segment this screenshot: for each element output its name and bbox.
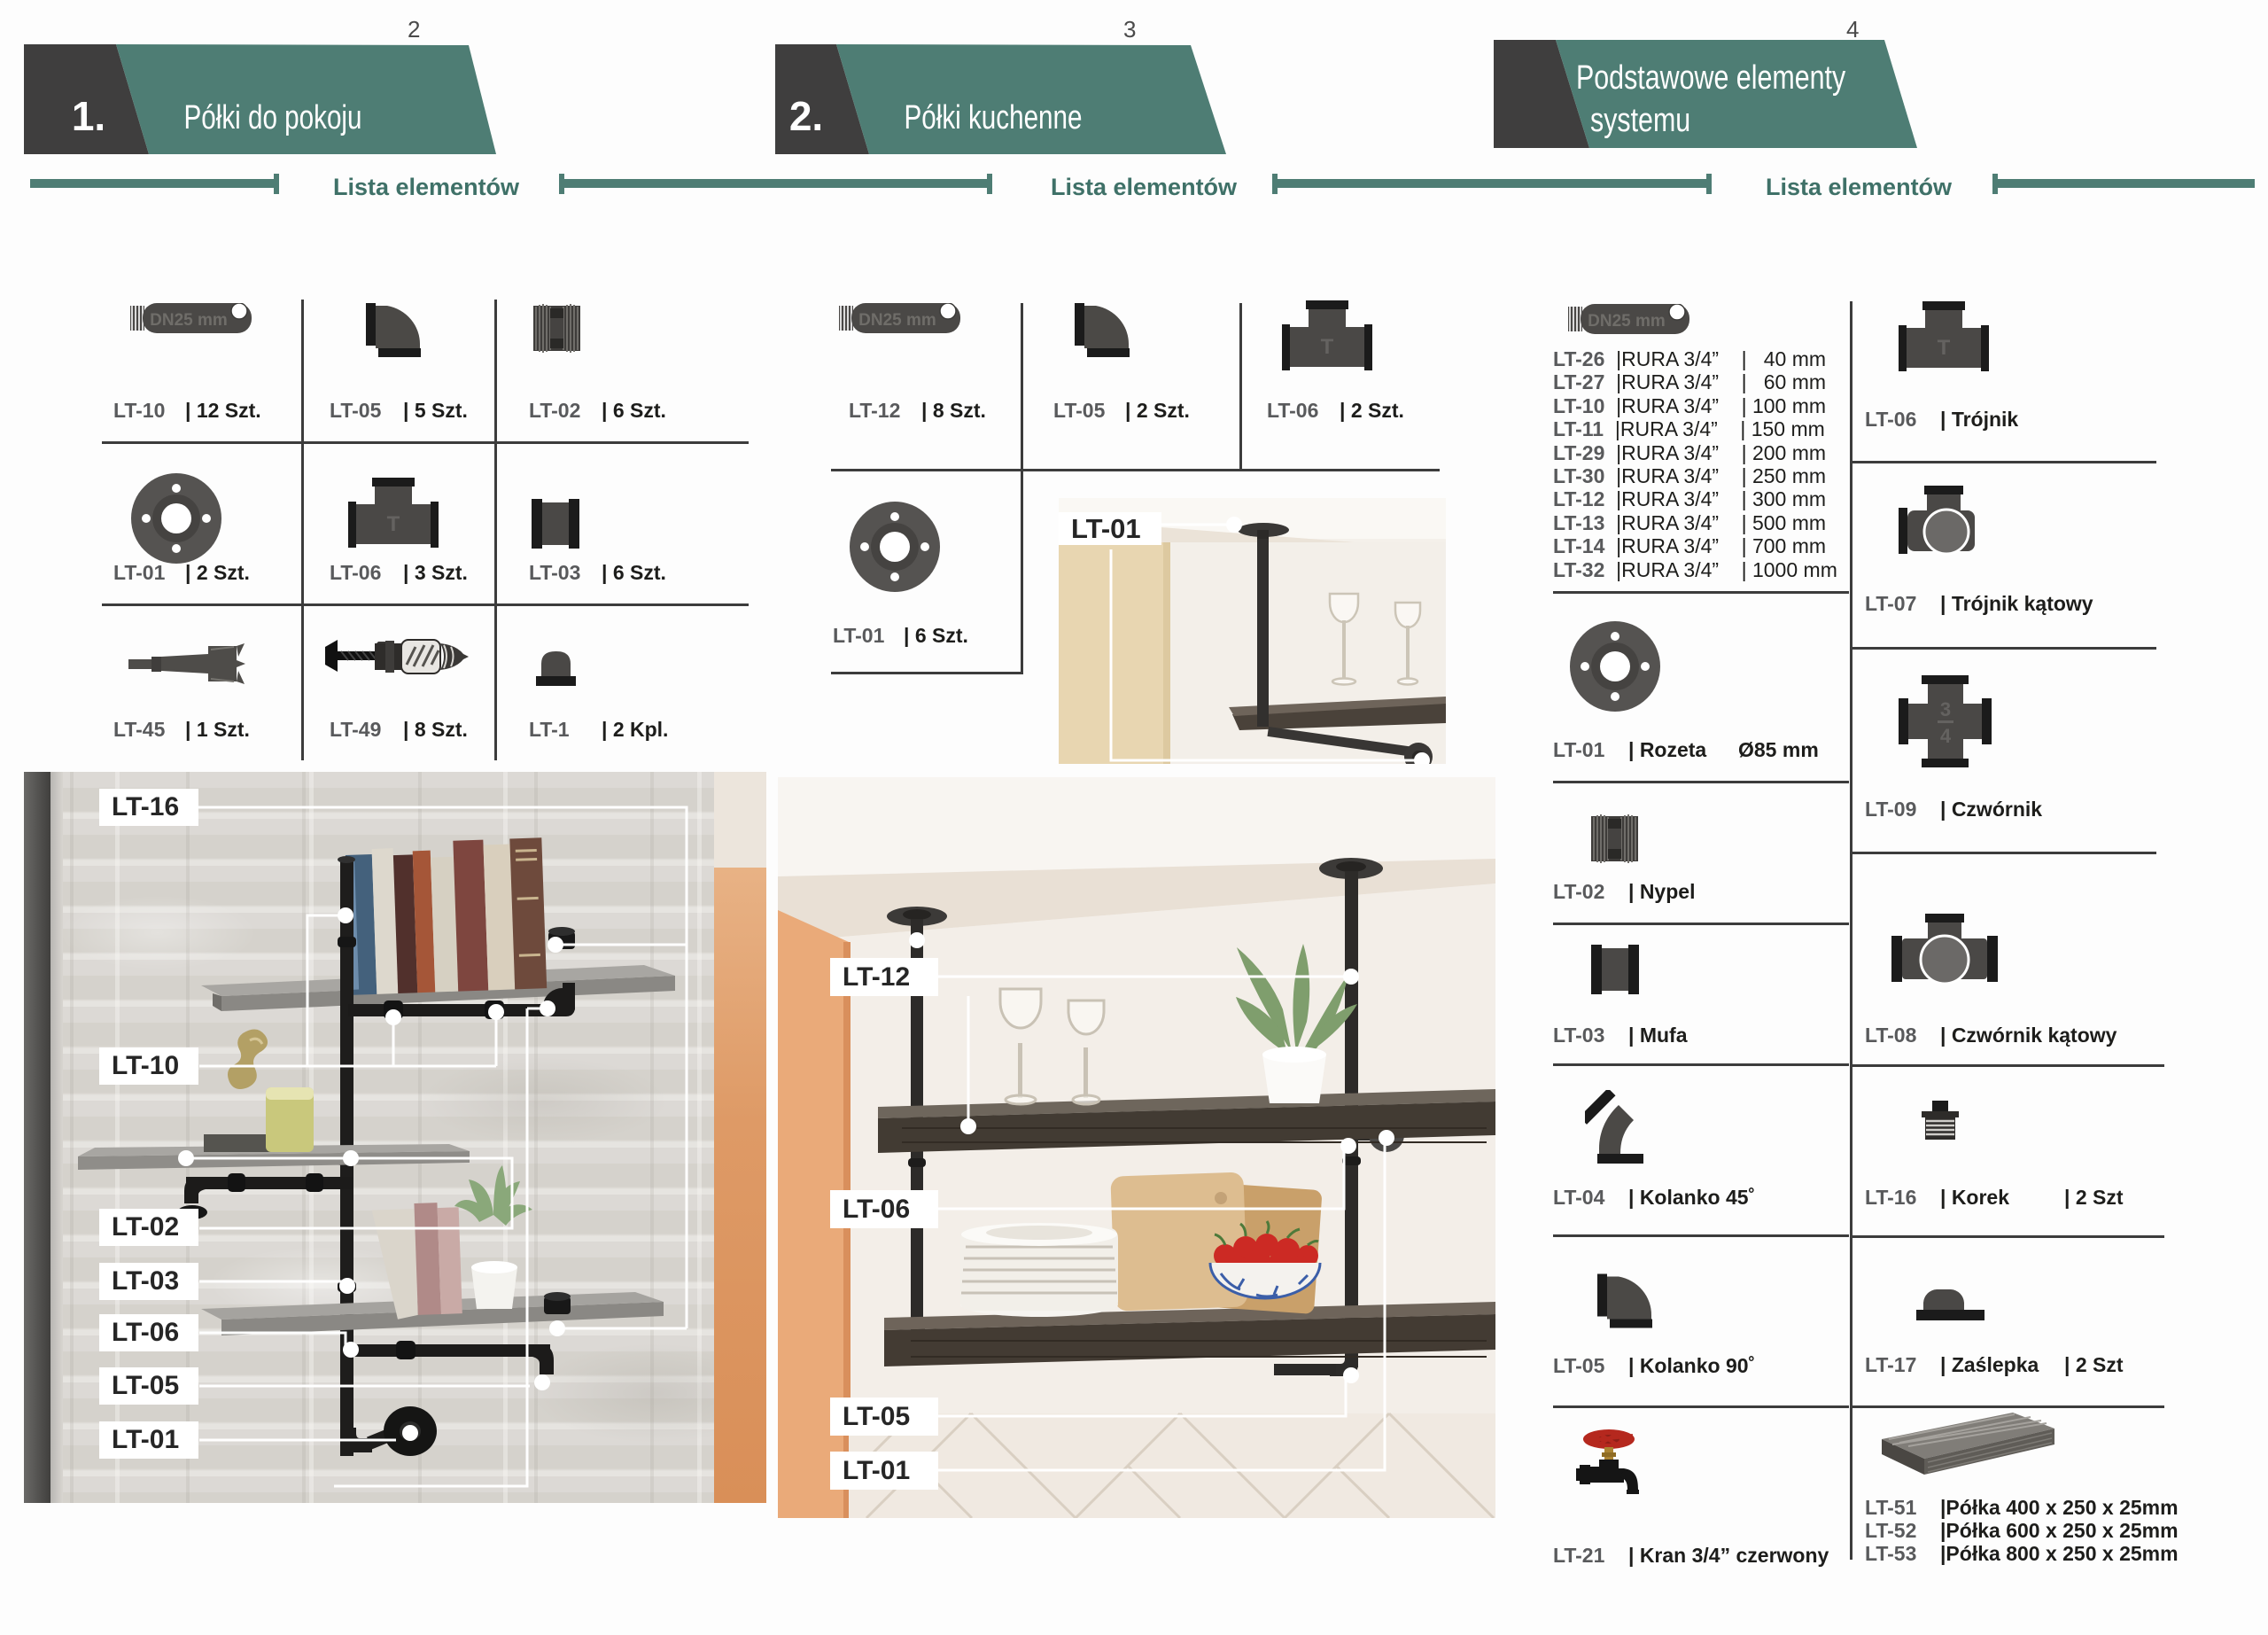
svg-text:DN25 mm: DN25 mm [1588,312,1666,331]
svg-text:T: T [1938,336,1951,360]
svg-text:T: T [1321,335,1334,359]
svg-text:DN25 mm: DN25 mm [150,311,228,330]
svg-text:4: 4 [1940,725,1952,747]
svg-text:3: 3 [1940,698,1951,720]
svg-text:T: T [387,512,400,536]
svg-text:DN25 mm: DN25 mm [858,311,936,330]
